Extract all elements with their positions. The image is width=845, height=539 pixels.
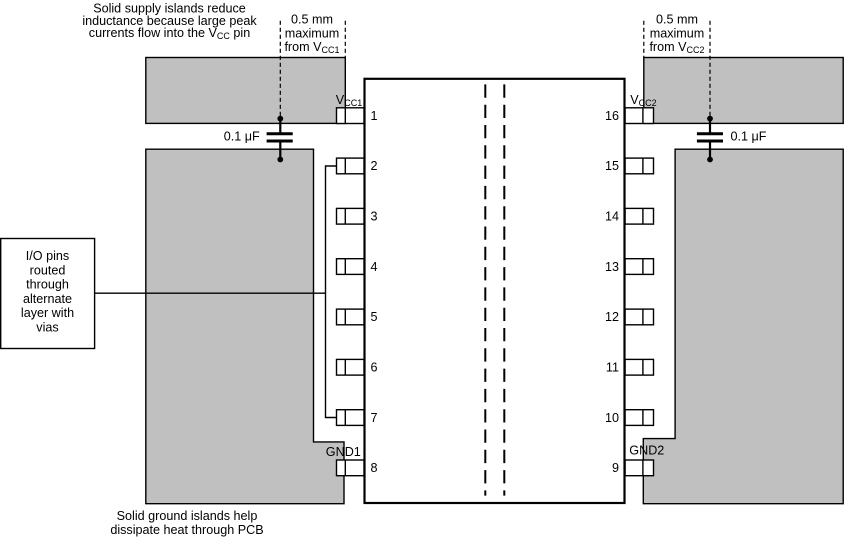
svg-text:14: 14 xyxy=(605,210,619,224)
svg-text:alternate: alternate xyxy=(23,292,72,306)
svg-text:I/O pins: I/O pins xyxy=(26,249,69,263)
svg-text:dissipate heat through PCB: dissipate heat through PCB xyxy=(110,523,263,537)
svg-text:0.5 mm: 0.5 mm xyxy=(291,12,333,26)
svg-text:layer with: layer with xyxy=(21,306,74,320)
svg-text:10: 10 xyxy=(605,411,619,425)
svg-text:through: through xyxy=(26,278,69,292)
svg-text:routed: routed xyxy=(30,263,66,277)
svg-text:0.1 μF: 0.1 μF xyxy=(224,130,260,144)
svg-text:vias: vias xyxy=(36,320,58,334)
svg-text:16: 16 xyxy=(605,109,619,123)
svg-text:5: 5 xyxy=(371,310,378,324)
svg-text:1: 1 xyxy=(371,109,378,123)
svg-text:GND2: GND2 xyxy=(629,444,664,458)
svg-text:0.5 mm: 0.5 mm xyxy=(656,12,698,26)
svg-text:8: 8 xyxy=(371,461,378,475)
svg-text:4: 4 xyxy=(371,260,378,274)
svg-text:3: 3 xyxy=(371,210,378,224)
svg-text:6: 6 xyxy=(371,361,378,375)
svg-text:maximum: maximum xyxy=(285,27,340,41)
svg-text:Solid ground islands help: Solid ground islands help xyxy=(117,509,258,523)
svg-text:15: 15 xyxy=(605,159,619,173)
svg-text:13: 13 xyxy=(605,260,619,274)
svg-text:7: 7 xyxy=(371,411,378,425)
svg-text:maximum: maximum xyxy=(650,27,705,41)
svg-text:12: 12 xyxy=(605,310,619,324)
svg-text:11: 11 xyxy=(606,361,619,375)
svg-text:GND1: GND1 xyxy=(326,445,361,459)
svg-text:9: 9 xyxy=(612,461,619,475)
svg-text:0.1 μF: 0.1 μF xyxy=(731,130,767,144)
svg-text:2: 2 xyxy=(371,159,378,173)
